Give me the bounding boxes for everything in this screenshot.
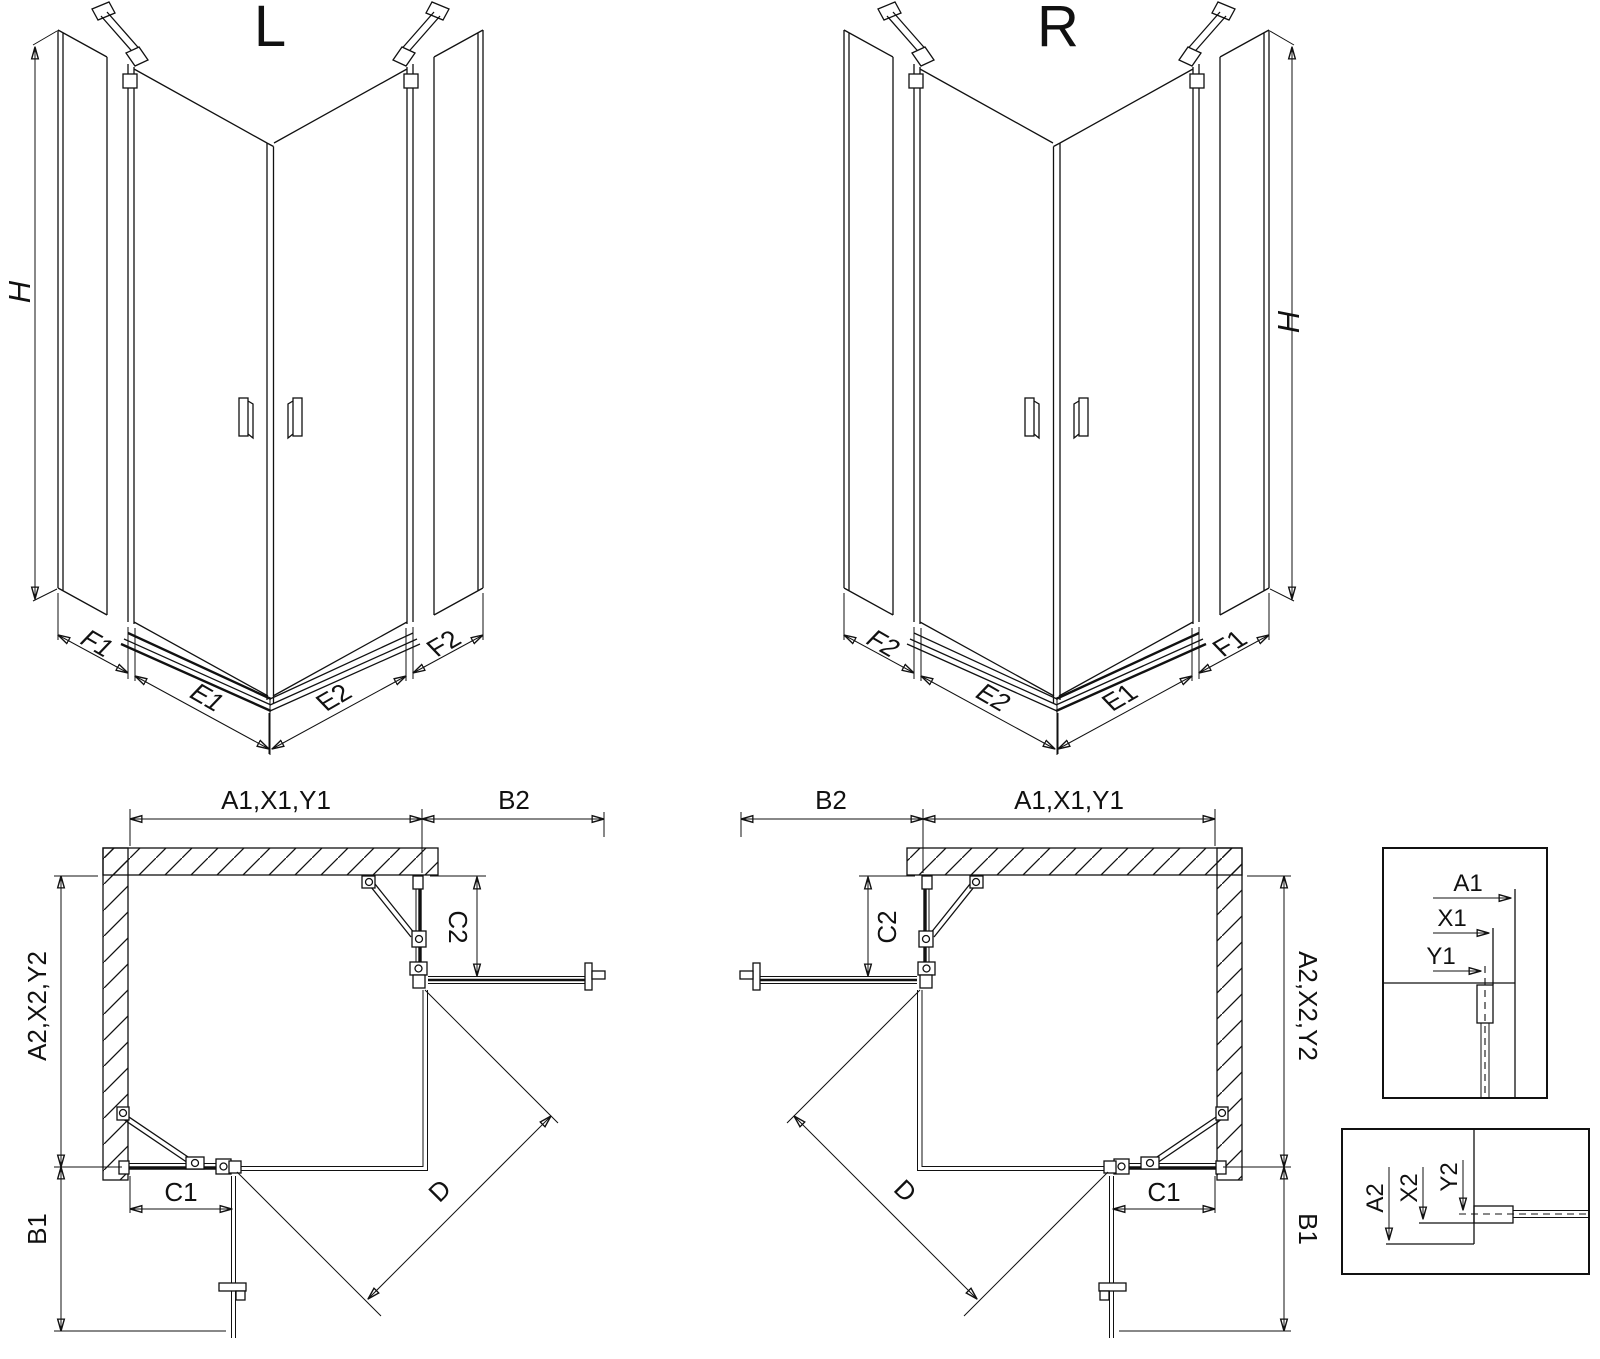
iso-right-title: R — [1037, 0, 1079, 59]
dim-label-f1-left: F1 — [74, 625, 121, 662]
iso-view-left: L H F1 E1 E2 F2 — [2, 0, 483, 755]
detail-box-bottom: A2 X2 Y2 — [1342, 1129, 1589, 1274]
dim-label-b1-planr: B1 — [1293, 1213, 1323, 1245]
plan-right-geometry — [740, 809, 1291, 1338]
detail-label-x2: X2 — [1396, 1173, 1423, 1202]
dim-label-c2-planl: C2 — [443, 910, 473, 943]
detail-label-x1: X1 — [1437, 905, 1466, 932]
dim-label-c2-planr: C2 — [872, 910, 902, 943]
dim-label-a1x1y1-planl: A1,X1,Y1 — [221, 785, 331, 815]
wall-side-right-plan — [1217, 848, 1242, 1180]
dim-label-c1-planr: C1 — [1147, 1177, 1180, 1207]
wall-top-left-plan — [103, 848, 438, 875]
dim-label-d-planl: D — [422, 1173, 456, 1207]
dim-label-a2x2y2-planr: A2,X2,Y2 — [1293, 951, 1323, 1061]
detail-label-y1: Y1 — [1426, 943, 1455, 970]
dim-label-h-left: H — [2, 280, 37, 303]
iso-left-title: L — [254, 0, 286, 59]
detail-label-a1: A1 — [1453, 870, 1482, 897]
dim-label-c1-planl: C1 — [164, 1177, 197, 1207]
plan-view-right: B2 A1,X1,Y1 C2 A2,X2,Y2 B1 C1 D — [740, 785, 1323, 1338]
plan-left-geometry — [54, 809, 605, 1338]
technical-drawing-page: L H F1 E1 E2 F2 R H F2 E2 E1 F1 A1,X1,Y1… — [0, 0, 1600, 1359]
iso-view-right: R H F2 E2 E1 F1 — [844, 0, 1306, 755]
dim-label-d-planr: D — [888, 1173, 922, 1207]
dim-label-h-right: H — [1271, 310, 1306, 333]
shower-enclosure-diagram: L H F1 E1 E2 F2 R H F2 E2 E1 F1 A1,X1,Y1… — [0, 0, 1600, 1359]
detail-box-top: A1 X1 Y1 — [1383, 848, 1547, 1098]
wall-top-right-plan — [907, 848, 1242, 875]
dim-label-a1x1y1-planr: A1,X1,Y1 — [1014, 785, 1124, 815]
detail-label-y2: Y2 — [1436, 1162, 1463, 1191]
dim-label-a2x2y2-planl: A2,X2,Y2 — [22, 951, 52, 1061]
dim-label-f2-right: F2 — [860, 625, 907, 662]
dim-label-f2-left: F2 — [420, 625, 467, 662]
detail-label-a2: A2 — [1362, 1183, 1389, 1212]
wall-side-left-plan — [103, 848, 128, 1180]
dim-label-f1-right: F1 — [1206, 625, 1253, 662]
dim-label-b2-planr: B2 — [815, 785, 847, 815]
dim-label-b2-planl: B2 — [498, 785, 530, 815]
dim-label-b1-planl: B1 — [22, 1213, 52, 1245]
plan-view-left: A1,X1,Y1 B2 C2 A2,X2,Y2 B1 C1 D — [22, 785, 605, 1338]
